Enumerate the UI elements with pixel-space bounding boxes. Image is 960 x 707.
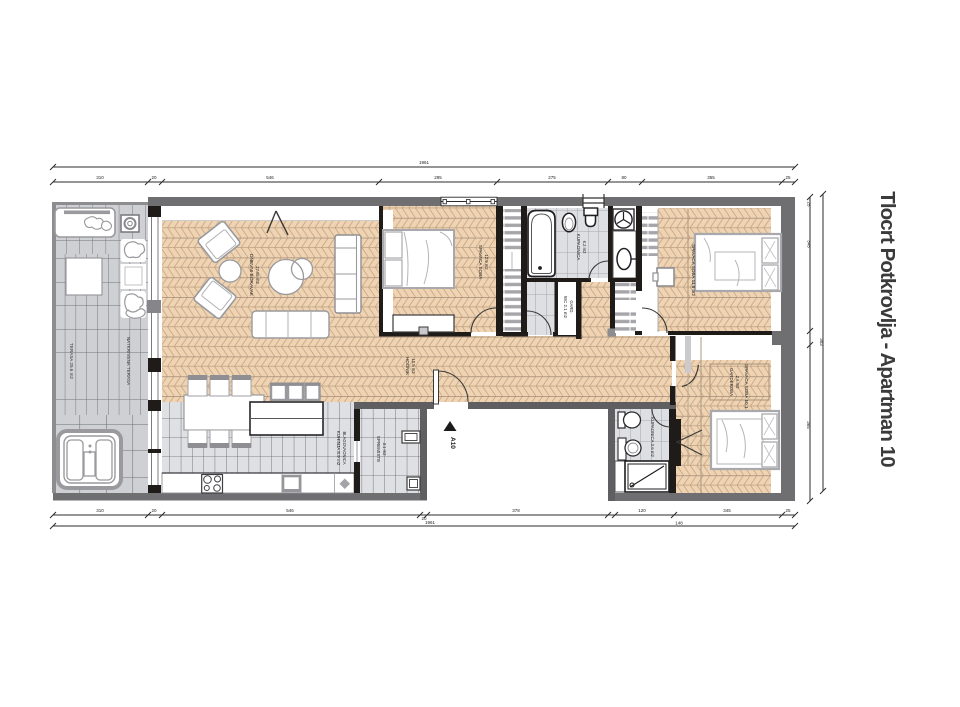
- svg-text:20: 20: [151, 175, 157, 180]
- svg-text:A10: A10: [449, 437, 456, 449]
- svg-text:Tlocrt Potkrovlja - Apartman 1: Tlocrt Potkrovlja - Apartman 10: [876, 191, 899, 467]
- svg-text:27.65 m2: 27.65 m2: [255, 266, 260, 284]
- svg-text:6.2 m2: 6.2 m2: [582, 241, 587, 254]
- svg-text:25: 25: [785, 175, 791, 180]
- svg-text:DNEVNI BORAVAK: DNEVNI BORAVAK: [248, 254, 254, 297]
- svg-text:303: 303: [819, 338, 824, 346]
- svg-text:25: 25: [785, 508, 791, 513]
- svg-text:345: 345: [807, 240, 812, 248]
- svg-text:1961: 1961: [419, 160, 430, 165]
- svg-text:378: 378: [512, 508, 520, 513]
- svg-text:SPAVACA SOBA 11.8 m2: SPAVACA SOBA 11.8 m2: [691, 244, 696, 296]
- svg-text:80: 80: [621, 175, 627, 180]
- svg-text:310: 310: [96, 175, 104, 180]
- svg-text:WC 2.1 m2: WC 2.1 m2: [563, 296, 568, 319]
- svg-text:10.5 m2: 10.5 m2: [411, 358, 416, 374]
- svg-text:SPAVACA SOBA: SPAVACA SOBA: [478, 245, 483, 280]
- svg-text:20: 20: [151, 508, 157, 513]
- svg-text:365: 365: [806, 421, 811, 429]
- svg-text:BLAGOVAONICA: BLAGOVAONICA: [342, 432, 347, 465]
- svg-text:HODNIK: HODNIK: [405, 357, 410, 376]
- svg-text:2.6 m2: 2.6 m2: [735, 376, 740, 389]
- svg-text:KUHINJA 8.9 m2: KUHINJA 8.9 m2: [336, 431, 341, 466]
- svg-text:12.9 m2: 12.9 m2: [484, 254, 489, 270]
- svg-text:120: 120: [638, 508, 646, 513]
- svg-text:275: 275: [548, 175, 556, 180]
- svg-text:TERASA 25.6 m2: TERASA 25.6 m2: [69, 343, 74, 379]
- svg-text:345: 345: [723, 508, 731, 513]
- svg-text:KUPAONICA: KUPAONICA: [576, 234, 581, 262]
- svg-text:25: 25: [807, 201, 812, 207]
- svg-text:1961: 1961: [425, 520, 436, 525]
- svg-text:310: 310: [96, 508, 104, 513]
- svg-text:SPREMISTE: SPREMISTE: [376, 436, 381, 463]
- svg-text:546: 546: [266, 175, 274, 180]
- svg-text:546: 546: [286, 508, 294, 513]
- svg-text:355: 355: [707, 175, 715, 180]
- svg-text:295: 295: [434, 175, 442, 180]
- svg-text:NATKRIVENA TERASA: NATKRIVENA TERASA: [126, 337, 131, 386]
- svg-text:148: 148: [675, 521, 683, 526]
- svg-text:GARD.: GARD.: [569, 300, 574, 313]
- svg-text:SPAVACA SOBA 10.1 m2: SPAVACA SOBA 10.1 m2: [744, 364, 749, 417]
- svg-text:3.1 m2: 3.1 m2: [382, 443, 387, 456]
- svg-text:KUPAONICA 3.6 m2: KUPAONICA 3.6 m2: [650, 417, 655, 457]
- svg-text:GARDEROBA: GARDEROBA: [729, 368, 734, 396]
